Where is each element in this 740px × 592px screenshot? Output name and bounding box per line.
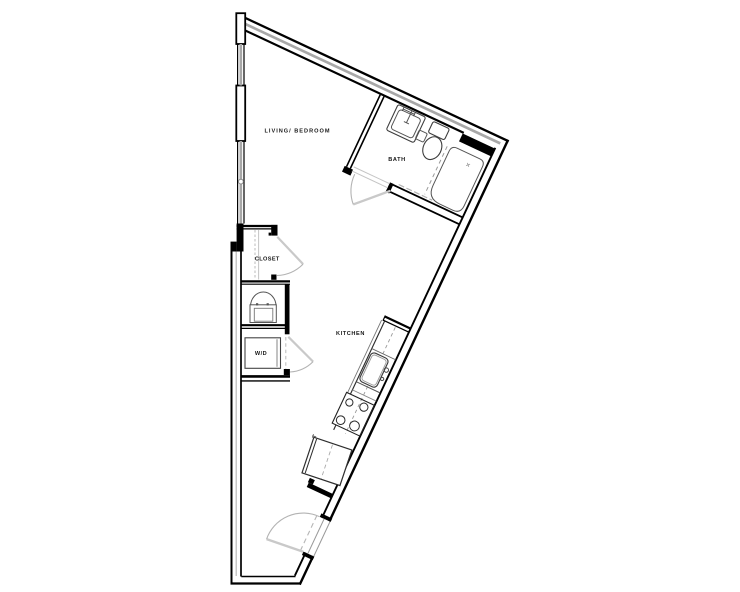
svg-text:CLOSET: CLOSET bbox=[255, 256, 280, 262]
svg-text:W/D: W/D bbox=[255, 351, 267, 357]
svg-text:LIVING/ BEDROOM: LIVING/ BEDROOM bbox=[265, 129, 331, 135]
svg-text:KITCHEN: KITCHEN bbox=[336, 331, 365, 337]
svg-text:BATH: BATH bbox=[388, 157, 406, 163]
